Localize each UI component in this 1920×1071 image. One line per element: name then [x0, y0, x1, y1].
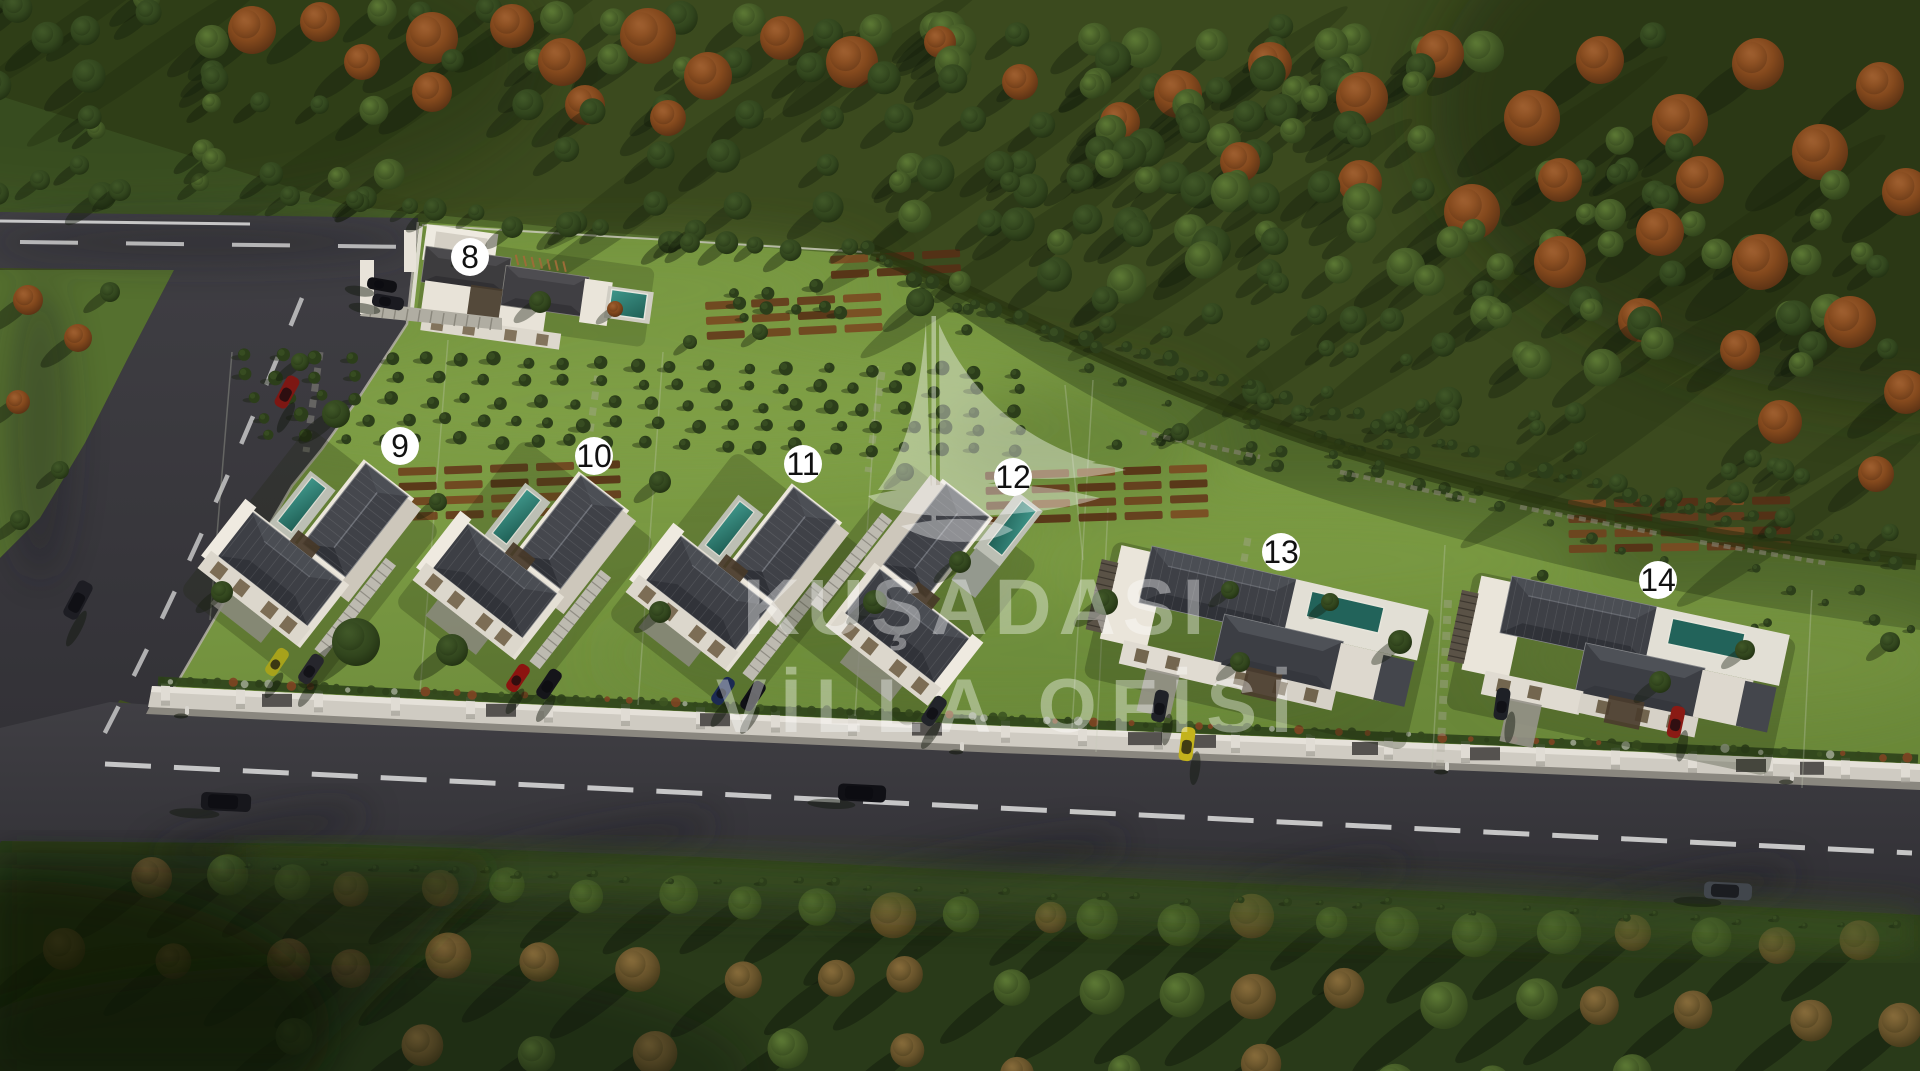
svg-text:10: 10 [576, 438, 612, 474]
svg-text:8: 8 [461, 239, 479, 275]
svg-text:9: 9 [391, 428, 409, 464]
svg-text:14: 14 [1640, 562, 1676, 598]
svg-text:13: 13 [1263, 534, 1299, 570]
svg-text:VİLLA OFİSİ: VİLLA OFİSİ [716, 664, 1306, 749]
svg-text:KUŞADASI: KUŞADASI [743, 562, 1212, 651]
svg-text:11: 11 [786, 446, 819, 482]
svg-text:12: 12 [995, 459, 1031, 495]
